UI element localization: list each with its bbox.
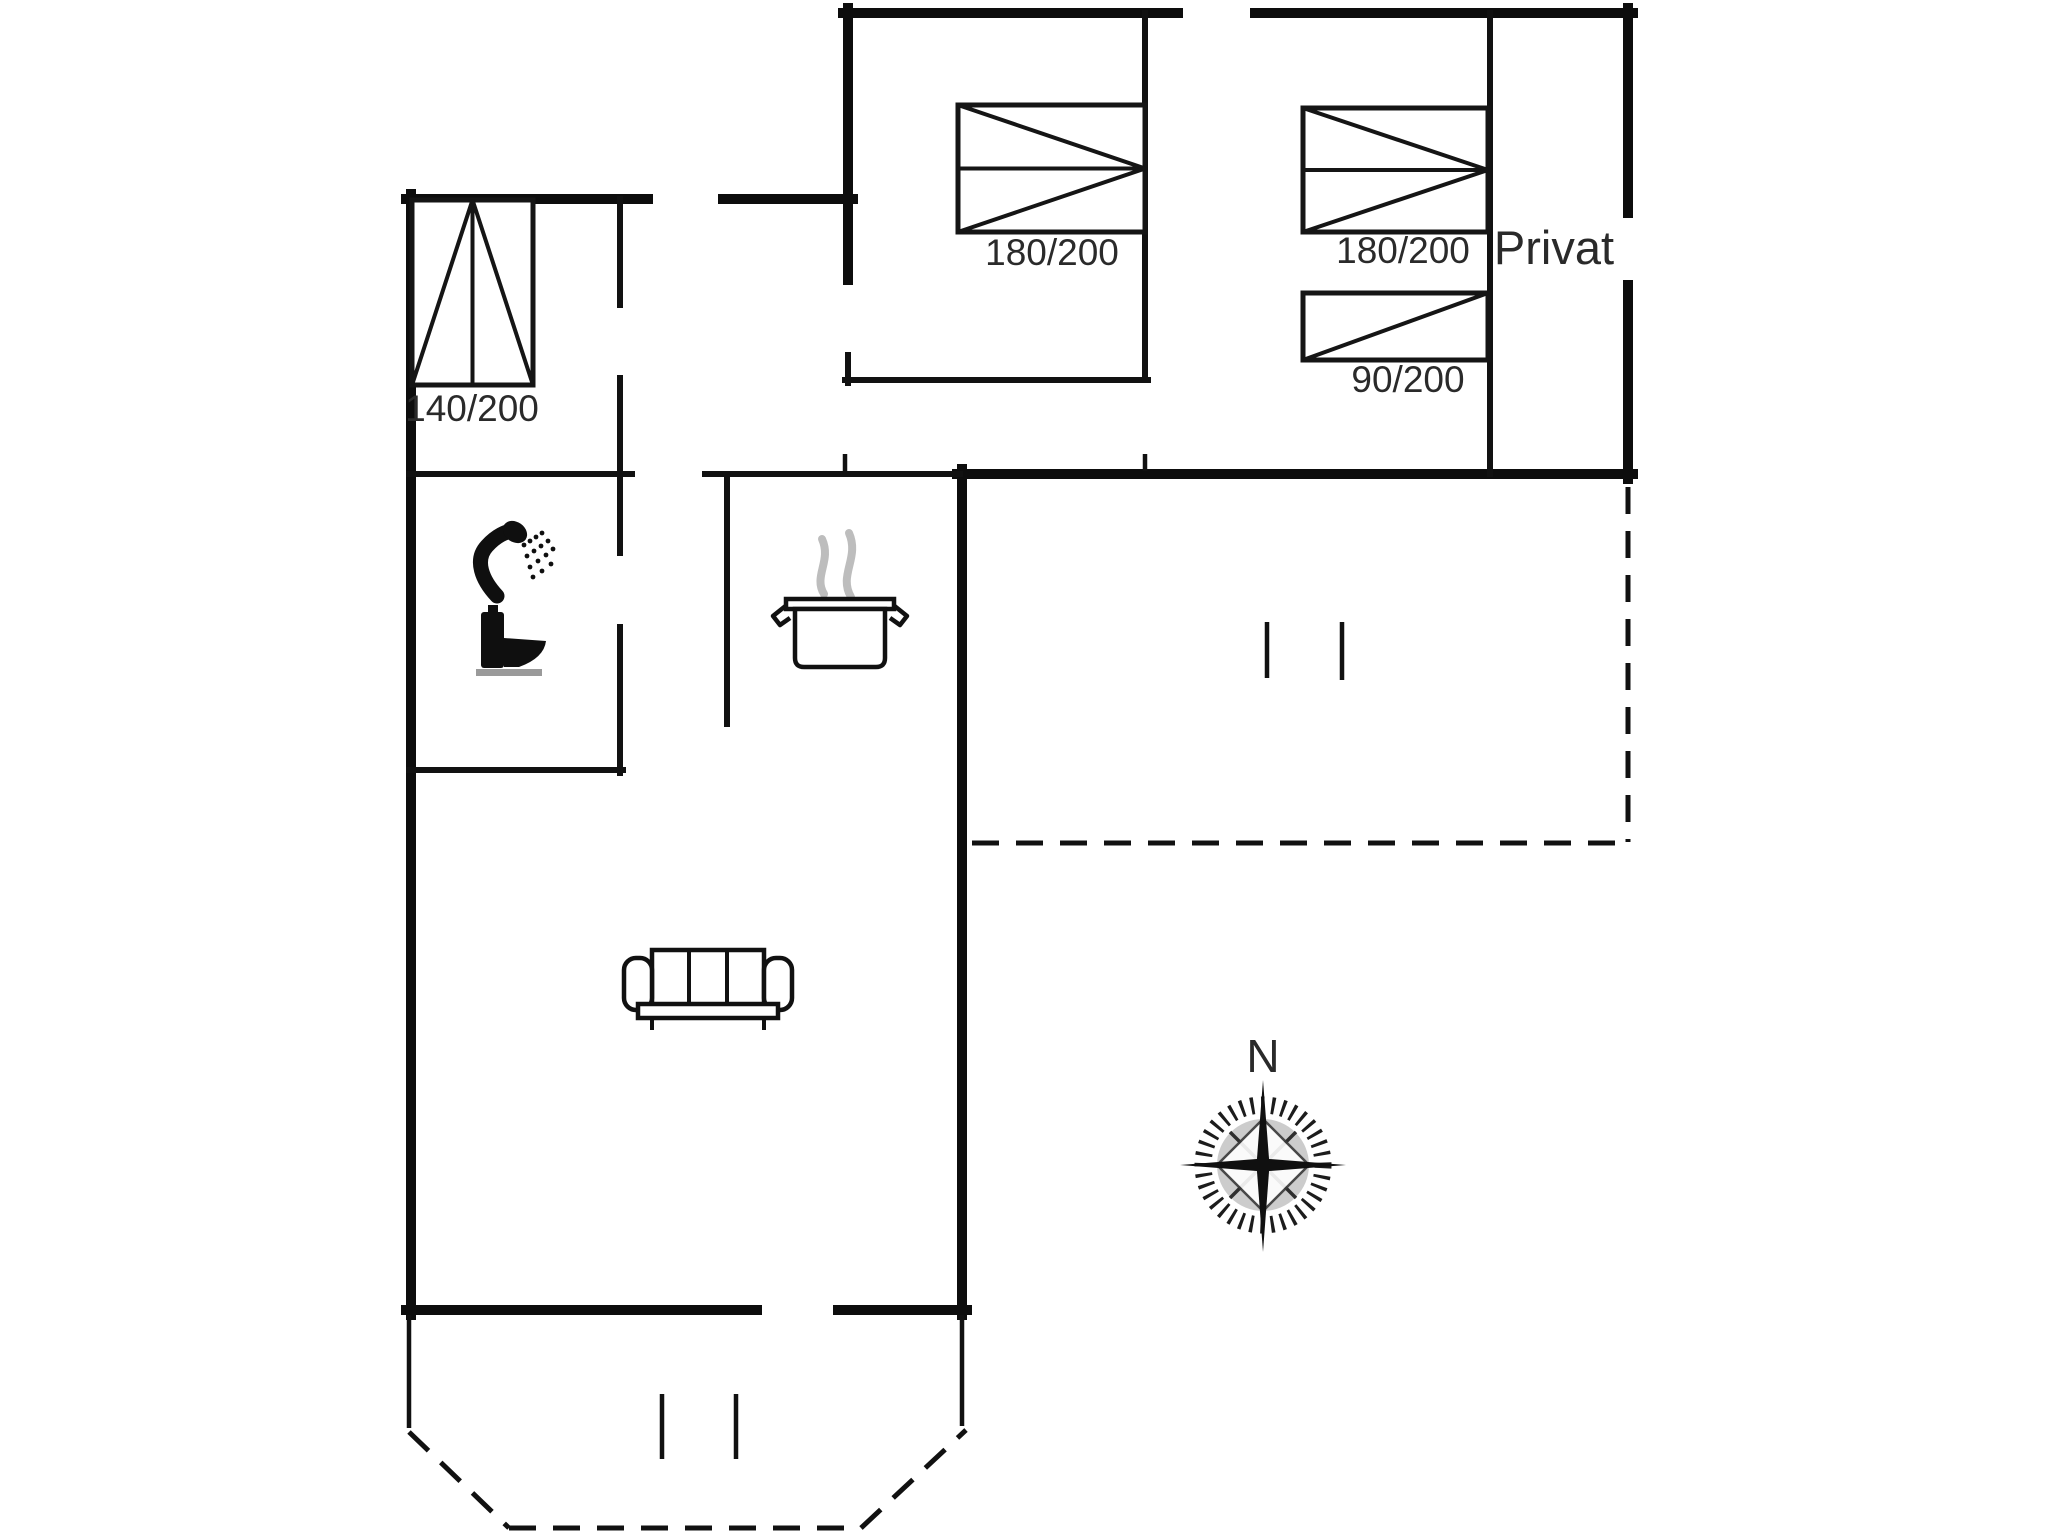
cooking-pot-icon bbox=[773, 533, 907, 667]
private-room-label: Privat bbox=[1494, 221, 1614, 274]
shower-icon bbox=[480, 516, 555, 596]
toilet-icon bbox=[476, 605, 546, 676]
compass-rose-icon bbox=[1180, 1080, 1346, 1252]
bed-90x200-icon bbox=[1303, 293, 1488, 360]
bed-size-90-200: 90/200 bbox=[1351, 359, 1464, 400]
bed-size-140-200: 140/200 bbox=[405, 388, 539, 429]
bed-180x200-private-room-icon bbox=[1303, 108, 1488, 232]
beds-layer bbox=[412, 105, 1488, 385]
bed-140x200-icon bbox=[412, 200, 533, 385]
steam-icon bbox=[820, 533, 852, 597]
bed-180x200-middle-room-icon bbox=[958, 105, 1145, 232]
terrace-outline bbox=[409, 1432, 509, 1528]
bed-size-180-200-private-room: 180/200 bbox=[1336, 230, 1470, 271]
terrace-outline bbox=[861, 1430, 966, 1528]
sofa-icon bbox=[624, 950, 792, 1030]
floor-plan-svg: 140/200180/200180/20090/200PrivatN bbox=[0, 0, 2048, 1536]
bed-size-180-200-middle-room: 180/200 bbox=[985, 232, 1119, 273]
compass-north-label: N bbox=[1246, 1030, 1279, 1082]
